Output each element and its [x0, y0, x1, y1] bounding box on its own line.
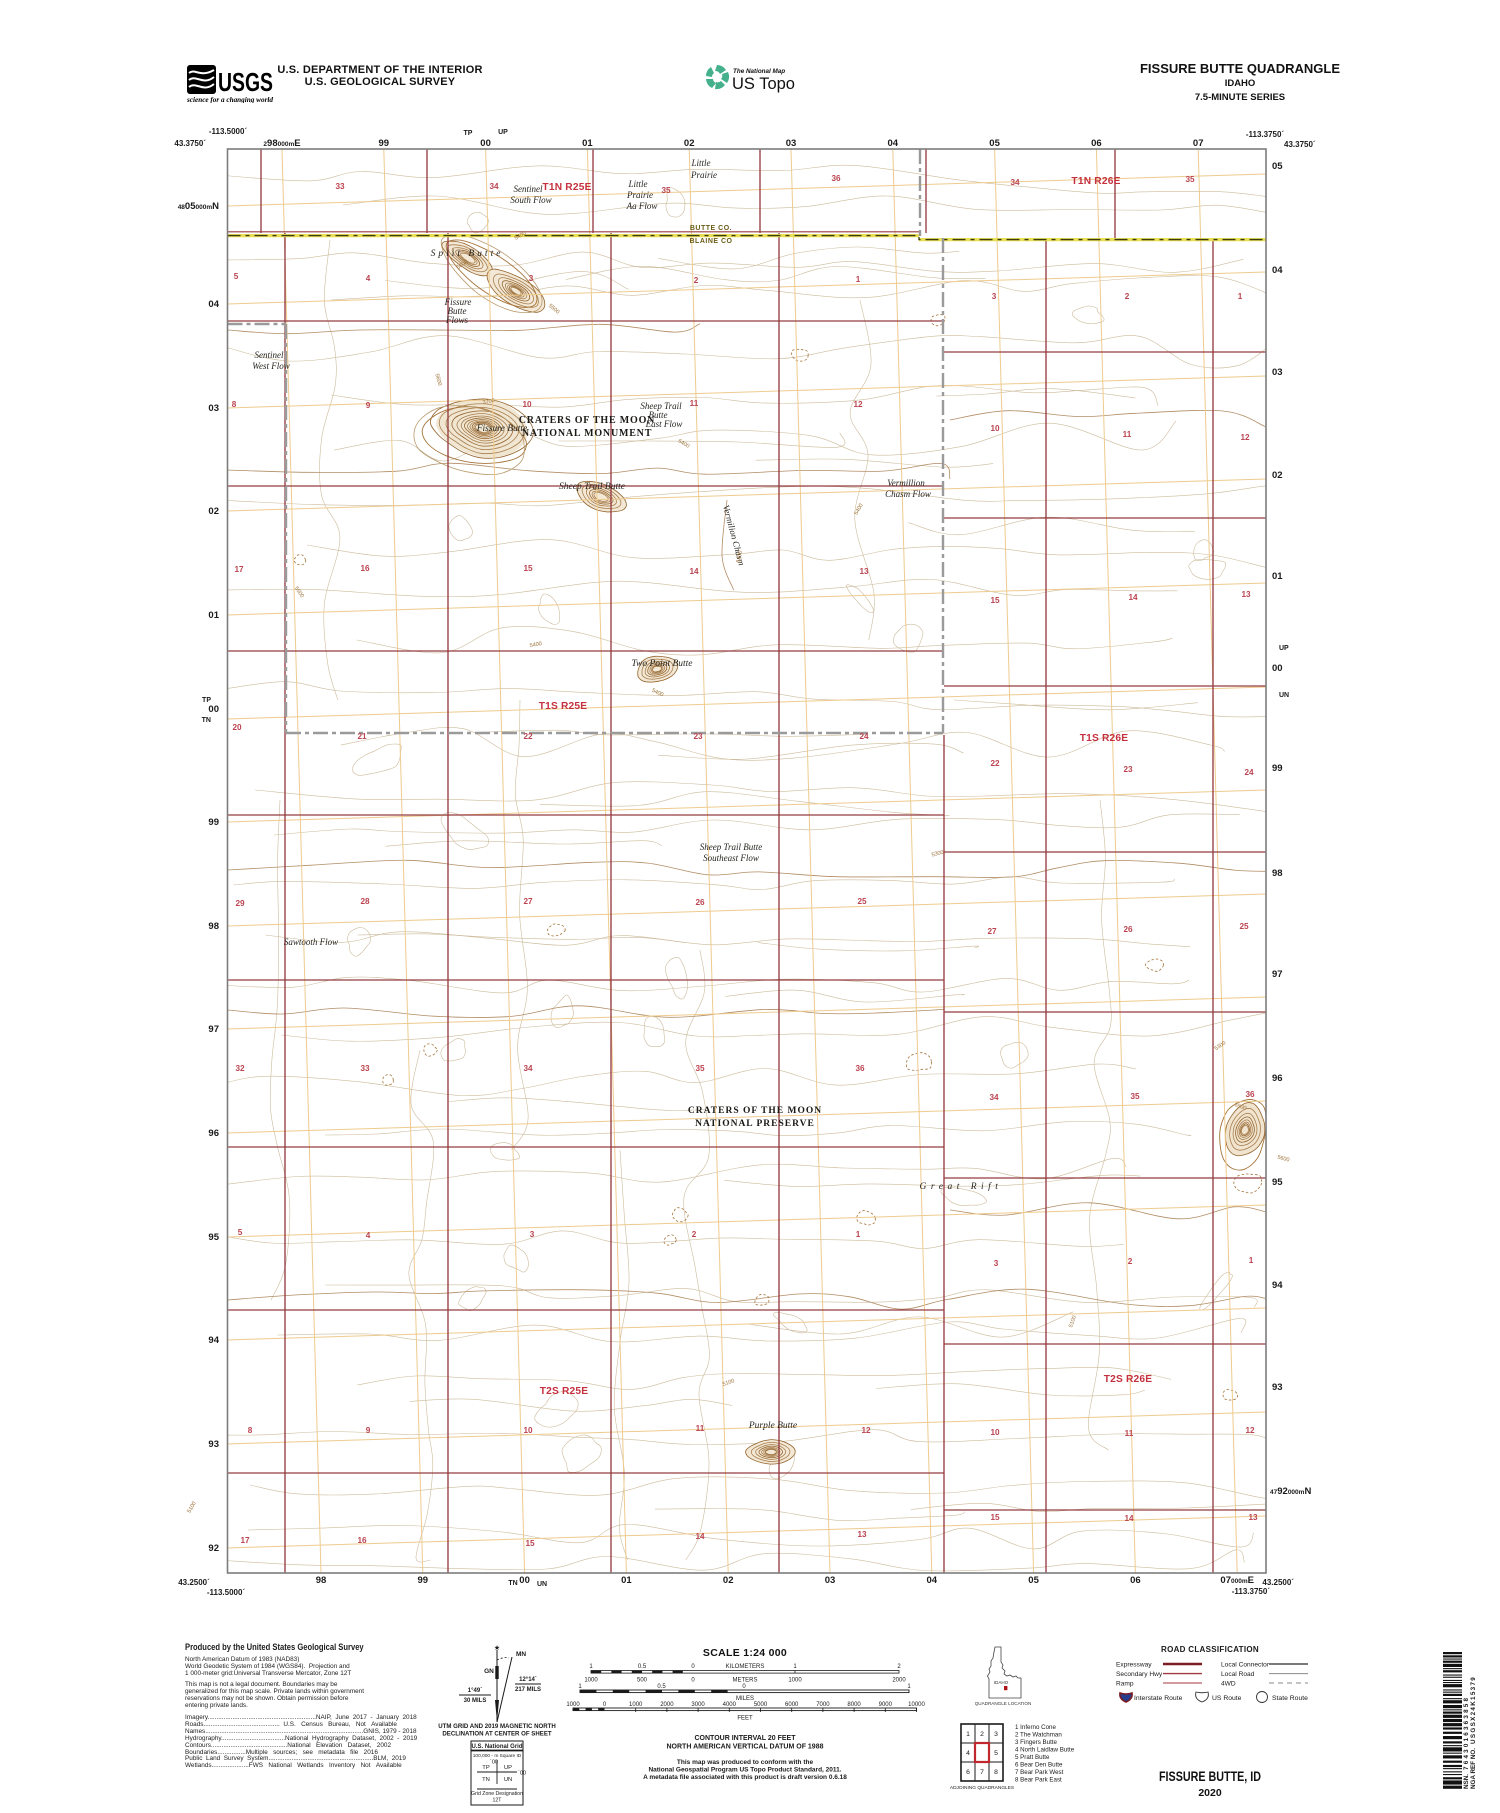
- svg-text:NATIONAL PRESERVE: NATIONAL PRESERVE: [695, 1119, 815, 1129]
- svg-text:23: 23: [1123, 765, 1133, 774]
- svg-text:14: 14: [695, 1532, 705, 1541]
- svg-text:Purple Butte: Purple Butte: [748, 1421, 797, 1431]
- svg-text:10: 10: [522, 400, 532, 409]
- svg-text:7000: 7000: [816, 1702, 830, 1708]
- svg-text:1: 1: [856, 275, 861, 284]
- svg-text:BLAINE CO: BLAINE CO: [690, 238, 733, 245]
- svg-text:93: 93: [208, 1439, 219, 1450]
- svg-text:3: 3: [992, 292, 997, 301]
- svg-text:99: 99: [418, 1575, 429, 1586]
- svg-text:1: 1: [1238, 292, 1243, 301]
- svg-text:TP: TP: [482, 1765, 490, 1771]
- svg-text:98: 98: [316, 1575, 327, 1586]
- svg-text:00: 00: [1272, 663, 1283, 674]
- svg-text:1000: 1000: [584, 1678, 598, 1684]
- svg-text:MILES: MILES: [736, 1696, 754, 1702]
- svg-text:100,000 - m Square ID: 100,000 - m Square ID: [473, 1753, 522, 1759]
- svg-text:1: 1: [578, 1684, 582, 1690]
- svg-text:NORTH AMERICAN VERTICAL DATUM: NORTH AMERICAN VERTICAL DATUM OF 1988: [667, 1744, 824, 1751]
- svg-text:T1N R25E: T1N R25E: [542, 182, 591, 193]
- svg-text:14: 14: [1128, 593, 1138, 602]
- svg-text:Flows: Flows: [445, 315, 469, 325]
- svg-text:4WD: 4WD: [1221, 1681, 1236, 1688]
- svg-text:15: 15: [990, 596, 1000, 605]
- svg-text:25: 25: [857, 897, 867, 906]
- svg-text:26: 26: [1123, 925, 1133, 934]
- svg-text:2: 2: [980, 1731, 984, 1738]
- svg-text:Sentinel: Sentinel: [255, 350, 284, 360]
- svg-text:METERS: METERS: [732, 1678, 757, 1684]
- svg-text:US Route: US Route: [1212, 1695, 1242, 1702]
- svg-text:Prairie: Prairie: [690, 170, 717, 180]
- svg-text:43.3750´: 43.3750´: [1284, 140, 1316, 149]
- svg-text:5: 5: [234, 272, 239, 281]
- svg-text:2020: 2020: [1198, 1787, 1222, 1799]
- svg-text:04: 04: [888, 138, 899, 149]
- svg-text:04: 04: [208, 299, 219, 310]
- svg-text:02: 02: [1272, 470, 1283, 481]
- svg-text:13: 13: [857, 1530, 867, 1539]
- svg-text:T2S R25E: T2S R25E: [540, 1386, 589, 1397]
- svg-text:05: 05: [989, 138, 1000, 149]
- svg-text:12°14´: 12°14´: [519, 1677, 537, 1683]
- svg-text:2 The Watchman: 2 The Watchman: [1015, 1732, 1062, 1739]
- svg-text:10000: 10000: [908, 1702, 925, 1708]
- svg-text:5: 5: [238, 1228, 243, 1237]
- svg-text:8: 8: [994, 1769, 998, 1776]
- svg-text:3: 3: [994, 1259, 999, 1268]
- svg-text:02: 02: [723, 1575, 734, 1586]
- svg-text:Grid Zone Designation: Grid Zone Designation: [471, 1791, 523, 1797]
- svg-text:98: 98: [208, 921, 219, 932]
- svg-text:9: 9: [366, 1426, 371, 1435]
- svg-text:95: 95: [1272, 1177, 1283, 1188]
- svg-text:34: 34: [989, 1093, 999, 1102]
- svg-text:1°49´: 1°49´: [468, 1688, 482, 1694]
- svg-text:4000: 4000: [723, 1702, 737, 1708]
- svg-text:05: 05: [1272, 161, 1283, 172]
- svg-text:2000: 2000: [892, 1678, 906, 1684]
- svg-text:UTM GRID AND 2019 MAGNETIC NOR: UTM GRID AND 2019 MAGNETIC NORTH: [438, 1723, 556, 1730]
- svg-text:3 Fingers Butte: 3 Fingers Butte: [1015, 1739, 1058, 1746]
- svg-text:FISSURE BUTTE, ID: FISSURE BUTTE, ID: [1159, 1769, 1261, 1784]
- svg-text:16: 16: [360, 564, 370, 573]
- svg-text:500: 500: [637, 1678, 648, 1684]
- svg-text:36: 36: [831, 174, 841, 183]
- svg-text:4792000mN: 4792000mN: [1270, 1486, 1311, 1497]
- svg-text:29: 29: [235, 899, 245, 908]
- svg-text:04: 04: [1272, 265, 1283, 276]
- svg-text:96: 96: [208, 1128, 219, 1139]
- svg-text:5 Pratt Butte: 5 Pratt Butte: [1015, 1754, 1050, 1761]
- svg-text:Great Rift: Great Rift: [920, 1181, 1003, 1192]
- svg-text:95: 95: [208, 1232, 219, 1243]
- svg-text:DECLINATION AT CENTER OF SHEET: DECLINATION AT CENTER OF SHEET: [442, 1731, 552, 1738]
- svg-text:A metadata file associated wit: A metadata file associated with this pro…: [643, 1774, 847, 1781]
- svg-text:07: 07: [1193, 138, 1204, 149]
- svg-text:5300: 5300: [931, 850, 944, 859]
- svg-text:11: 11: [1125, 1429, 1134, 1438]
- svg-text:13: 13: [1248, 1513, 1258, 1522]
- svg-text:4: 4: [966, 1750, 970, 1757]
- svg-text:Local Road: Local Road: [1221, 1671, 1255, 1678]
- svg-text:5500: 5500: [547, 303, 560, 315]
- svg-text:9000: 9000: [879, 1702, 893, 1708]
- svg-text:0: 0: [742, 1684, 746, 1690]
- svg-text:MN: MN: [516, 1651, 526, 1658]
- svg-text:-113.3750´: -113.3750´: [1246, 130, 1285, 139]
- svg-text:CRATERS OF THE MOON: CRATERS OF THE MOON: [519, 415, 655, 426]
- svg-text:CRATERS OF THE MOON: CRATERS OF THE MOON: [688, 1106, 822, 1116]
- svg-text:9: 9: [366, 401, 371, 410]
- svg-text:36: 36: [1245, 1090, 1255, 1099]
- svg-text:Aa Flow: Aa Flow: [626, 201, 658, 211]
- svg-text:11: 11: [690, 399, 699, 408]
- svg-text:14: 14: [1124, 1514, 1134, 1523]
- svg-text:7 Bear Park West: 7 Bear Park West: [1015, 1769, 1064, 1776]
- svg-text:14: 14: [689, 567, 699, 576]
- svg-text:1000: 1000: [566, 1702, 580, 1708]
- svg-text:5600: 5600: [1277, 1155, 1290, 1164]
- svg-text:4: 4: [366, 274, 371, 283]
- svg-text:2000: 2000: [660, 1702, 674, 1708]
- svg-text:96: 96: [1272, 1073, 1283, 1084]
- svg-text:1000: 1000: [788, 1678, 802, 1684]
- svg-text:2: 2: [1125, 292, 1130, 301]
- svg-text:43.3750´: 43.3750´: [174, 139, 206, 148]
- svg-text:5400: 5400: [529, 641, 542, 649]
- svg-text:03: 03: [208, 403, 219, 414]
- svg-text:ROAD CLASSIFICATION: ROAD CLASSIFICATION: [1161, 1645, 1259, 1654]
- svg-text:Vermilion Chasm: Vermilion Chasm: [721, 504, 747, 567]
- svg-text:17: 17: [234, 565, 244, 574]
- svg-text:1 Inferno Cone: 1 Inferno Cone: [1015, 1724, 1056, 1731]
- svg-text:97: 97: [1272, 969, 1283, 980]
- svg-text:-113.5000´: -113.5000´: [209, 127, 248, 136]
- svg-text:TN: TN: [482, 1777, 490, 1783]
- svg-text:SCALE 1:24 000: SCALE 1:24 000: [703, 1647, 787, 1659]
- svg-text:4 North Laidlaw Butte: 4 North Laidlaw Butte: [1015, 1747, 1075, 1754]
- svg-text:94: 94: [208, 1335, 219, 1346]
- svg-text:15: 15: [990, 1513, 1000, 1522]
- svg-text:12T: 12T: [493, 1798, 503, 1804]
- svg-text:10: 10: [990, 1428, 1000, 1437]
- svg-text:0: 0: [603, 1702, 607, 1708]
- svg-text:22: 22: [523, 732, 533, 741]
- svg-text:17: 17: [240, 1536, 250, 1545]
- svg-text:5100: 5100: [1068, 1315, 1078, 1329]
- svg-text:Chasm Flow: Chasm Flow: [885, 489, 931, 499]
- svg-text:3000: 3000: [691, 1702, 705, 1708]
- svg-text:Split Butte: Split Butte: [431, 249, 504, 259]
- svg-text:BUTTE CO.: BUTTE CO.: [690, 225, 732, 232]
- svg-text:South Flow: South Flow: [510, 195, 551, 205]
- svg-text:Little: Little: [690, 158, 710, 168]
- svg-text:1: 1: [793, 1664, 797, 1670]
- svg-text:27: 27: [523, 897, 533, 906]
- svg-text:5400: 5400: [651, 688, 665, 699]
- svg-text:94: 94: [1272, 1280, 1283, 1291]
- svg-text:06: 06: [1091, 138, 1102, 149]
- svg-text:22: 22: [990, 759, 1000, 768]
- svg-text:NATIONAL MONUMENT: NATIONAL MONUMENT: [522, 428, 652, 439]
- svg-text:GN: GN: [484, 1668, 494, 1675]
- svg-text:35: 35: [695, 1064, 705, 1073]
- svg-text:★: ★: [494, 1644, 500, 1652]
- svg-text:97: 97: [208, 1024, 219, 1035]
- svg-text:Sentinel: Sentinel: [514, 184, 543, 194]
- svg-text:T1S R25E: T1S R25E: [539, 701, 588, 712]
- svg-text:34: 34: [489, 182, 499, 191]
- svg-text:West Flow: West Flow: [252, 361, 289, 371]
- svg-text:43.2500´: 43.2500´: [178, 1578, 210, 1587]
- svg-text:5000: 5000: [754, 1702, 768, 1708]
- svg-text:25: 25: [1239, 922, 1249, 931]
- svg-text:35: 35: [1130, 1092, 1140, 1101]
- svg-text:5400: 5400: [677, 438, 691, 449]
- svg-text:Local Connector: Local Connector: [1221, 1662, 1270, 1669]
- svg-text:30 MILS: 30 MILS: [464, 1698, 487, 1704]
- svg-text:12: 12: [1240, 433, 1250, 442]
- svg-text:2: 2: [692, 1230, 697, 1239]
- svg-text:6000: 6000: [785, 1702, 799, 1708]
- svg-text:´00: ´00: [518, 1771, 526, 1777]
- svg-text:Ramp: Ramp: [1116, 1681, 1134, 1688]
- svg-text:TN: TN: [508, 1580, 517, 1587]
- svg-text:1: 1: [856, 1230, 861, 1239]
- svg-text:99: 99: [379, 138, 390, 149]
- svg-text:National Geospatial Program US: National Geospatial Program US Topo Prod…: [648, 1767, 841, 1774]
- svg-text:IDAHO: IDAHO: [994, 1680, 1009, 1685]
- svg-text:8000: 8000: [847, 1702, 861, 1708]
- svg-text:10: 10: [990, 424, 1000, 433]
- svg-text:UP: UP: [498, 129, 508, 136]
- svg-text:00: 00: [480, 138, 491, 149]
- svg-text:06: 06: [1130, 1575, 1141, 1586]
- svg-text:35: 35: [1185, 175, 1195, 184]
- svg-text:28: 28: [360, 897, 370, 906]
- svg-text:24: 24: [859, 732, 869, 741]
- svg-text:NGA REF NO.USGSX24K15379: NGA REF NO.USGSX24K15379: [1470, 1676, 1477, 1789]
- svg-text:Southeast Flow: Southeast Flow: [703, 853, 759, 863]
- svg-text:Prairie: Prairie: [626, 190, 653, 200]
- svg-text:Interstate Route: Interstate Route: [1134, 1695, 1183, 1702]
- svg-text:T2S R26E: T2S R26E: [1104, 1374, 1153, 1385]
- svg-text:00: 00: [519, 1575, 530, 1586]
- svg-text:93: 93: [1272, 1382, 1283, 1393]
- svg-text:99: 99: [1272, 763, 1283, 774]
- svg-text:27: 27: [987, 927, 997, 936]
- svg-text:8: 8: [232, 400, 237, 409]
- svg-text:1: 1: [589, 1664, 593, 1670]
- svg-text:36: 36: [855, 1064, 865, 1073]
- svg-text:20: 20: [232, 723, 242, 732]
- svg-text:T1S R26E: T1S R26E: [1080, 733, 1129, 744]
- svg-text:33: 33: [360, 1064, 370, 1073]
- svg-text:6: 6: [966, 1769, 970, 1776]
- svg-text:0.5: 0.5: [638, 1664, 647, 1670]
- svg-text:0.5: 0.5: [657, 1684, 666, 1690]
- svg-text:16: 16: [357, 1536, 367, 1545]
- svg-text:3: 3: [994, 1731, 998, 1738]
- svg-text:6 Bear Den Butte: 6 Bear Den Butte: [1015, 1762, 1063, 1769]
- svg-text:4805000mN: 4805000mN: [178, 201, 219, 212]
- svg-text:QUADRANGLE LOCATION: QUADRANGLE LOCATION: [975, 1701, 1032, 1706]
- svg-text:2: 2: [897, 1664, 901, 1670]
- svg-text:02: 02: [684, 138, 695, 149]
- svg-text:This map was produced to confo: This map was produced to conform with th…: [677, 1759, 814, 1766]
- svg-text:24: 24: [1244, 768, 1254, 777]
- svg-text:05: 05: [1028, 1575, 1039, 1586]
- svg-text:0: 0: [691, 1678, 695, 1684]
- svg-text:03: 03: [1272, 367, 1283, 378]
- svg-text:UN: UN: [504, 1777, 512, 1783]
- svg-text:03: 03: [825, 1575, 836, 1586]
- svg-text:11: 11: [696, 1424, 705, 1433]
- svg-text:13: 13: [1241, 590, 1251, 599]
- svg-text:4: 4: [366, 1231, 371, 1240]
- svg-text:State Route: State Route: [1272, 1695, 1308, 1702]
- svg-text:98: 98: [1272, 868, 1283, 879]
- svg-text:2: 2: [1128, 1257, 1133, 1266]
- svg-text:7: 7: [980, 1769, 984, 1776]
- svg-text:´00: ´00: [490, 1760, 498, 1766]
- svg-text:21: 21: [357, 732, 367, 741]
- svg-text:FEET: FEET: [737, 1716, 753, 1722]
- svg-text:TN: TN: [202, 717, 211, 724]
- svg-text:01: 01: [582, 138, 593, 149]
- svg-text:01: 01: [621, 1575, 632, 1586]
- svg-text:01: 01: [208, 610, 219, 621]
- svg-text:33: 33: [335, 182, 345, 191]
- svg-text:-113.5000´: -113.5000´: [207, 1588, 246, 1597]
- svg-text:99: 99: [208, 817, 219, 828]
- svg-text:34: 34: [523, 1064, 533, 1073]
- svg-text:04: 04: [927, 1575, 938, 1586]
- svg-text:Vermillion: Vermillion: [887, 478, 925, 488]
- svg-text:TP: TP: [464, 130, 473, 137]
- svg-text:34: 34: [1010, 178, 1020, 187]
- svg-text:Sheep Trail Butte: Sheep Trail Butte: [559, 482, 625, 492]
- svg-text:12: 12: [1245, 1426, 1255, 1435]
- svg-text:CONTOUR INTERVAL 20 FEET: CONTOUR INTERVAL 20 FEET: [695, 1735, 797, 1742]
- svg-text:01: 01: [1272, 571, 1283, 582]
- svg-text:3: 3: [530, 1230, 535, 1239]
- svg-text:-113.3750´: -113.3750´: [1232, 1587, 1271, 1596]
- svg-text:Expressway: Expressway: [1116, 1662, 1152, 1669]
- svg-text:43.2500´: 43.2500´: [1262, 1578, 1294, 1587]
- svg-text:Two Point Butte: Two Point Butte: [631, 659, 692, 669]
- svg-text:KILOMETERS: KILOMETERS: [726, 1664, 765, 1670]
- svg-text:32: 32: [235, 1064, 245, 1073]
- svg-text:00: 00: [208, 704, 219, 715]
- svg-text:15: 15: [525, 1539, 535, 1548]
- svg-text:5600: 5600: [433, 373, 442, 386]
- svg-text:UN: UN: [1279, 692, 1289, 699]
- svg-text:U.S. National Grid: U.S. National Grid: [471, 1744, 522, 1750]
- svg-text:5: 5: [994, 1750, 998, 1757]
- svg-text:5100: 5100: [186, 1501, 197, 1515]
- svg-text:5300: 5300: [1214, 1040, 1227, 1052]
- svg-text:26: 26: [695, 898, 705, 907]
- svg-text:23: 23: [693, 732, 703, 741]
- svg-text:2: 2: [694, 276, 699, 285]
- svg-text:NSN.7643016363858: NSN.7643016363858: [1463, 1696, 1470, 1789]
- svg-text:92: 92: [208, 1543, 219, 1554]
- svg-text:12: 12: [853, 400, 863, 409]
- svg-text:T1N R26E: T1N R26E: [1071, 176, 1120, 187]
- svg-text:298000mE: 298000mE: [263, 138, 300, 149]
- svg-text:UP: UP: [1279, 645, 1289, 652]
- svg-text:UP: UP: [504, 1765, 512, 1771]
- svg-text:Sheep Trail Butte: Sheep Trail Butte: [700, 842, 763, 852]
- svg-text:Little: Little: [627, 179, 647, 189]
- svg-text:10: 10: [523, 1426, 533, 1435]
- svg-text:217 MILS: 217 MILS: [515, 1687, 541, 1693]
- svg-text:1: 1: [966, 1731, 970, 1738]
- svg-text:07000mE: 07000mE: [1220, 1575, 1254, 1586]
- svg-text:TP: TP: [202, 697, 211, 704]
- svg-text:03: 03: [786, 138, 797, 149]
- svg-text:11: 11: [1123, 430, 1132, 439]
- svg-text:3: 3: [529, 274, 534, 283]
- svg-text:15: 15: [523, 564, 533, 573]
- svg-text:UN: UN: [537, 1581, 547, 1588]
- svg-text:02: 02: [208, 506, 219, 517]
- svg-text:Secondary Hwy: Secondary Hwy: [1116, 1671, 1163, 1678]
- svg-text:5400: 5400: [853, 503, 864, 517]
- svg-text:5100: 5100: [722, 1378, 736, 1388]
- svg-text:0: 0: [691, 1664, 695, 1670]
- svg-text:ADJOINING QUADRANGLES: ADJOINING QUADRANGLES: [950, 1785, 1014, 1791]
- svg-text:12: 12: [861, 1426, 871, 1435]
- svg-text:13: 13: [859, 567, 869, 576]
- svg-text:35: 35: [661, 186, 671, 195]
- svg-text:1000: 1000: [629, 1702, 643, 1708]
- svg-text:8: 8: [248, 1426, 253, 1435]
- svg-text:8 Bear Park East: 8 Bear Park East: [1015, 1777, 1062, 1784]
- svg-text:Sawtooth Flow: Sawtooth Flow: [284, 937, 338, 947]
- svg-text:1: 1: [907, 1684, 911, 1690]
- svg-text:1: 1: [1249, 1256, 1254, 1265]
